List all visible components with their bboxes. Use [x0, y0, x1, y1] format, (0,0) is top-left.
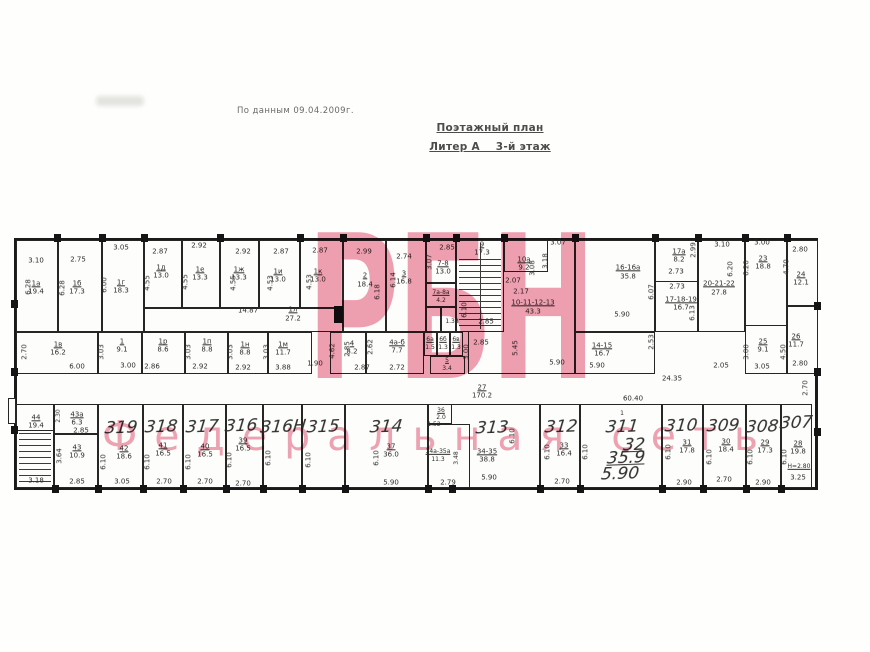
dimension-label: 3.07 — [426, 254, 433, 270]
dimension-label: 16.7 — [673, 304, 689, 311]
room-number-label: 16-16а — [616, 264, 641, 271]
dimension-label: 5.90 — [383, 479, 399, 486]
dimension-label: 2.70 — [156, 478, 172, 485]
handwritten-room-number: 314 — [369, 419, 403, 438]
handwritten-room-number: 316 — [224, 418, 258, 437]
dimension-label: 19.4 — [28, 422, 44, 429]
dimension-label: 13.0 — [310, 276, 326, 283]
dimension-label: 2.07 — [505, 277, 521, 284]
wall-pier — [141, 234, 148, 242]
dimension-label: 6.28 — [59, 280, 66, 296]
room — [8, 398, 16, 424]
dimension-label: 2.70 — [554, 478, 570, 485]
dimension-label: 18.6 — [116, 453, 132, 460]
dimension-label: 6.18 — [374, 284, 381, 300]
dimension-label: 2.86 — [144, 363, 160, 370]
dimension-label: 2.75 — [70, 256, 86, 263]
handwritten-room-number: 313 — [475, 420, 509, 439]
dimension-label: 8.8 — [239, 349, 250, 356]
dimension-label: 27.8 — [711, 289, 727, 296]
dimension-label: 6.07 — [648, 284, 655, 300]
wall-pier — [140, 485, 147, 493]
wall-pier — [297, 234, 304, 242]
dimension-label: 16.7 — [594, 350, 610, 357]
dimension-label: 3.03 — [98, 344, 105, 360]
room-number-label: 6в — [452, 337, 459, 343]
wall-pier — [299, 485, 306, 493]
room — [426, 307, 441, 332]
handwritten-room-number: 309 — [706, 418, 740, 437]
dimension-label: 11.7 — [788, 341, 804, 348]
dimension-label: 2.90 — [755, 479, 771, 486]
dimension-label: 9.2 — [518, 264, 529, 271]
dimension-label: 4.50 — [780, 344, 787, 360]
dimension-label: 38.8 — [479, 456, 495, 463]
dimension-label: 5.90 — [589, 362, 605, 369]
dimension-label: 13.0 — [153, 272, 169, 279]
dimension-label: 2.70 — [716, 476, 732, 483]
dimension-label: 1.3 — [438, 345, 448, 351]
dimension-label: 11.3 — [431, 457, 444, 463]
dimension-label: 18.4 — [718, 446, 734, 453]
dimension-label: 18.4 — [357, 281, 373, 288]
dimension-label: 12.1 — [793, 279, 809, 286]
dimension-label: 6.20 — [727, 261, 734, 277]
dimension-label: 13.0 — [435, 268, 451, 275]
dimension-label: 2.92 — [235, 364, 251, 371]
wall-pier — [340, 234, 347, 242]
handwritten-room-number: 312 — [544, 419, 578, 438]
dimension-label: 2.99 — [356, 248, 372, 255]
dimension-label: 16.5 — [235, 445, 251, 452]
wall-pier — [54, 234, 61, 242]
dimension-label: 3.00 — [120, 362, 136, 369]
room-number-label: 5 — [445, 358, 449, 364]
dimension-label: 9.1 — [116, 346, 127, 353]
dimension-label: 4.2 — [436, 298, 446, 304]
dimension-label: 9.1 — [757, 346, 768, 353]
handwritten-room-number: 318 — [144, 419, 178, 438]
dimension-label: 2.87 — [152, 248, 168, 255]
wall-pier — [11, 368, 18, 376]
dimension-label: 2.99 — [690, 242, 697, 258]
dimension-label: 6.10 — [144, 454, 151, 470]
dimension-label: 3.05 — [113, 244, 129, 251]
dimension-label: 3.4 — [442, 366, 452, 372]
wall-pier — [652, 234, 659, 242]
dimension-label: 6.10 — [747, 449, 754, 465]
dimension-label: 1.5 — [425, 345, 435, 351]
dimension-label: 6.10 — [226, 452, 233, 468]
dimension-label: 3.03 — [227, 344, 234, 360]
door-leaf — [334, 306, 343, 323]
dimension-label: 10.9 — [69, 452, 85, 459]
room-number-label: 1л — [289, 306, 298, 313]
dimension-label: 2.70 — [802, 380, 809, 396]
wall-pier — [572, 234, 579, 242]
dimension-label: 170.2 — [472, 392, 492, 399]
dimension-label: 2.85 — [478, 318, 494, 325]
wall-pier — [223, 485, 230, 493]
dimension-label: 2.85 — [473, 339, 489, 346]
dimension-label: 3.00 — [743, 344, 750, 360]
dimension-label: 6.13 — [689, 305, 696, 321]
dimension-label: 7.7 — [391, 347, 402, 354]
dimension-label: 6.10 — [373, 450, 380, 466]
dimension-label: 13.0 — [270, 276, 286, 283]
dimension-label: 3.07 — [550, 239, 566, 246]
room-number-label: 34а-35а — [426, 449, 451, 455]
dimension-label: 17.3 — [757, 447, 773, 454]
dimension-label: 8.2 — [673, 256, 684, 263]
dimension-label: 2.30 — [56, 409, 62, 422]
dimension-label: 2.80 — [792, 246, 808, 253]
dimension-label: 6.10 — [100, 454, 107, 470]
dimension-label: 5.45 — [512, 340, 519, 356]
dimension-label: 2.90 — [676, 479, 692, 486]
wall-pier — [695, 234, 702, 242]
wall-pier — [11, 426, 18, 434]
dimension-label: 14.87 — [238, 307, 258, 314]
dimension-label: 2.87 — [354, 364, 370, 371]
dimension-label: 6.10 — [305, 452, 312, 468]
dimension-label: 18.8 — [755, 263, 771, 270]
dimension-label: 2.73 — [668, 268, 684, 275]
dimension-label: 6.10 — [706, 449, 713, 465]
dimension-label: 3.05 — [114, 478, 130, 485]
dimension-label: 3.10 — [28, 257, 44, 264]
handwritten-room-number: 5.90 — [600, 465, 640, 484]
dimension-label: 2.85 — [69, 478, 85, 485]
wall-pier — [742, 234, 749, 242]
wall-pier — [180, 485, 187, 493]
dimension-label: 2.70 — [197, 478, 213, 485]
wall-pier — [423, 234, 430, 242]
dimension-label: 1.3 — [451, 345, 461, 351]
dimension-label: 3.03 — [263, 344, 270, 360]
wall-pier — [260, 485, 267, 493]
dimension-label: 16.4 — [556, 450, 572, 457]
dimension-label: 2.70 — [21, 344, 28, 360]
dimension-label: 11.7 — [275, 349, 291, 356]
wall-pier — [743, 485, 750, 493]
dimension-label: 6.20 — [743, 260, 750, 276]
dimension-label: 6.00 — [101, 277, 108, 293]
dimension-label: 3.18 — [542, 253, 549, 269]
wall-pier — [814, 368, 821, 376]
handwritten-room-number: 308 — [745, 419, 779, 438]
dimension-label: 36.0 — [383, 451, 399, 458]
dimension-label: 5.90 — [549, 359, 565, 366]
dimension-label: 2.80 — [792, 360, 808, 367]
dimension-label: 6.10 — [582, 444, 589, 460]
dimension-label: 2.87 — [273, 248, 289, 255]
wall-pier — [217, 234, 224, 242]
dimension-label: 16.5 — [197, 451, 213, 458]
dimension-label: 6.10 — [509, 428, 516, 444]
wall-pier — [425, 485, 432, 493]
dimension-label: 13.3 — [231, 274, 247, 281]
dimension-label: 2.85 — [344, 341, 351, 357]
dimension-label: 5.90 — [481, 474, 497, 481]
dimension-label: 2.70 — [235, 480, 251, 487]
dimension-label: 2.92 — [235, 248, 251, 255]
dimension-label: 3.48 — [454, 451, 460, 464]
dimension-label: 2.72 — [389, 364, 405, 371]
dimension-label: 4.62 — [329, 343, 336, 359]
dimension-label: 2.53 — [648, 334, 655, 350]
room-number-label: 2 — [363, 272, 367, 279]
wall-pier — [52, 485, 59, 493]
room — [575, 332, 655, 374]
dimension-label: 35.8 — [620, 273, 636, 280]
dimension-label: 6.10 — [461, 302, 468, 318]
dimension-label: 19.4 — [28, 288, 44, 295]
dimension-label: 17.3 — [69, 288, 85, 295]
wall-pier — [814, 428, 821, 436]
dimension-label: 6.10 — [185, 454, 192, 470]
dimension-label: 3.88 — [275, 364, 291, 371]
dimension-label: 3.18 — [28, 477, 44, 484]
dimension-label: 1.90 — [307, 360, 323, 367]
dimension-label: 6.10 — [665, 444, 672, 460]
dimension-label: 2.62 — [367, 339, 374, 355]
room-number-label: 20-21-22 — [703, 280, 735, 287]
wall-pier — [11, 300, 18, 308]
dimension-label: 18.3 — [113, 287, 129, 294]
dimension-label: 6.10 — [544, 444, 551, 460]
dimension-label: 5.90 — [614, 311, 630, 318]
room-number-label: 6б — [439, 337, 447, 343]
dimension-label: 4.70 — [783, 259, 790, 275]
wall-pier — [99, 234, 106, 242]
wall-pier — [659, 485, 666, 493]
dimension-label: 8.8 — [201, 346, 212, 353]
dimension-label: 60.40 — [623, 395, 643, 402]
room-number-label: Н=2.80 — [788, 464, 811, 470]
dimension-label: 2.92 — [192, 363, 208, 370]
dimension-label: 16.8 — [396, 278, 412, 285]
wall-pier — [537, 485, 544, 493]
wall-pier — [95, 485, 102, 493]
dimension-label: 19.8 — [790, 448, 806, 455]
dimension-label: 3.25 — [790, 474, 806, 481]
dimension-label: 6.00 — [69, 363, 85, 370]
handwritten-room-number: 316Н — [259, 418, 306, 437]
handwritten-room-number: 317 — [185, 419, 219, 438]
handwritten-room-number: 315 — [306, 419, 340, 438]
wall-pier — [577, 485, 584, 493]
dimension-label: 2.85 — [439, 244, 455, 251]
room-number-label: 7а-8а — [432, 290, 449, 296]
dimension-label: 4.55 — [182, 274, 189, 290]
dimension-label: 2.05 — [713, 362, 729, 369]
dimension-label: 24.35 — [662, 375, 682, 382]
dimension-label: 16.2 — [50, 349, 66, 356]
wall-pier — [342, 485, 349, 493]
dimension-label: 3.05 — [754, 363, 770, 370]
dimension-label: 17.8 — [679, 447, 695, 454]
dimension-label: 6.10 — [265, 450, 272, 466]
wall-pier — [453, 234, 460, 242]
dimension-label: 16.5 — [155, 450, 171, 457]
handwritten-room-number: 310 — [664, 418, 698, 437]
dimension-label: 2.85 — [73, 427, 89, 434]
wall-pier — [784, 234, 791, 242]
room-number-label: 10-11-12-13 — [511, 299, 554, 306]
dimension-label: 2.17 — [513, 288, 529, 295]
handwritten-room-number: 307 — [779, 415, 813, 434]
floor-plan: 3.102.753.052.872.922.922.872.872.992.74… — [0, 0, 870, 652]
dimension-label: 2.74 — [396, 253, 412, 260]
scanned-floor-plan-page: По данным 09.04.2009г. Поэтажный план Ли… — [0, 0, 870, 652]
dimension-label: 2.79 — [440, 479, 456, 486]
dimension-label: 3.64 — [56, 448, 63, 464]
handwritten-room-number: 319 — [104, 420, 138, 439]
dimension-label: 3.00 — [754, 239, 770, 246]
dimension-label: 1.52 — [427, 422, 440, 428]
dimension-label: 2.87 — [312, 247, 328, 254]
dimension-label: 3.10 — [714, 241, 730, 248]
dimension-label: 8.6 — [157, 346, 168, 353]
wall-pier — [814, 302, 821, 310]
dimension-label: 3.03 — [185, 344, 192, 360]
dimension-label: 27.2 — [285, 315, 301, 322]
dimension-label: 43.3 — [525, 308, 541, 315]
dimension-label: 4.55 — [144, 275, 151, 291]
dimension-label: 3.00 — [463, 344, 470, 360]
room-number-label: 6а — [426, 337, 434, 343]
wall-pier — [700, 485, 707, 493]
dimension-label: 1.33 — [445, 319, 458, 325]
wall-pier — [501, 234, 508, 242]
dimension-label: 17.3 — [474, 249, 490, 256]
dimension-label: 2.92 — [191, 242, 207, 249]
wall-pier — [778, 485, 785, 493]
dimension-label: 2.73 — [669, 283, 685, 290]
dimension-label: 13.3 — [192, 274, 208, 281]
